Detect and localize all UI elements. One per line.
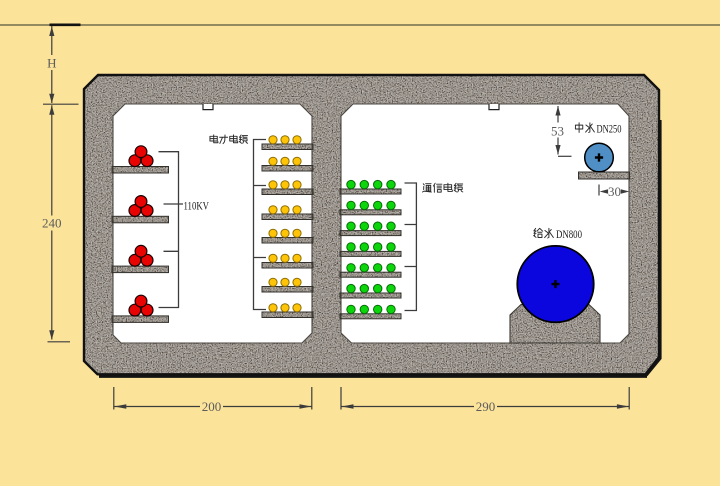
svg-text:30: 30 [608, 184, 621, 199]
svg-text:DN800: DN800 [556, 227, 582, 241]
svg-text:200: 200 [202, 399, 222, 414]
svg-text:290: 290 [476, 399, 496, 414]
svg-text:53: 53 [551, 124, 564, 139]
svg-text:110KV: 110KV [184, 199, 210, 213]
svg-text:H: H [47, 56, 56, 71]
svg-text:DN250: DN250 [597, 122, 622, 136]
svg-text:240: 240 [42, 216, 62, 231]
